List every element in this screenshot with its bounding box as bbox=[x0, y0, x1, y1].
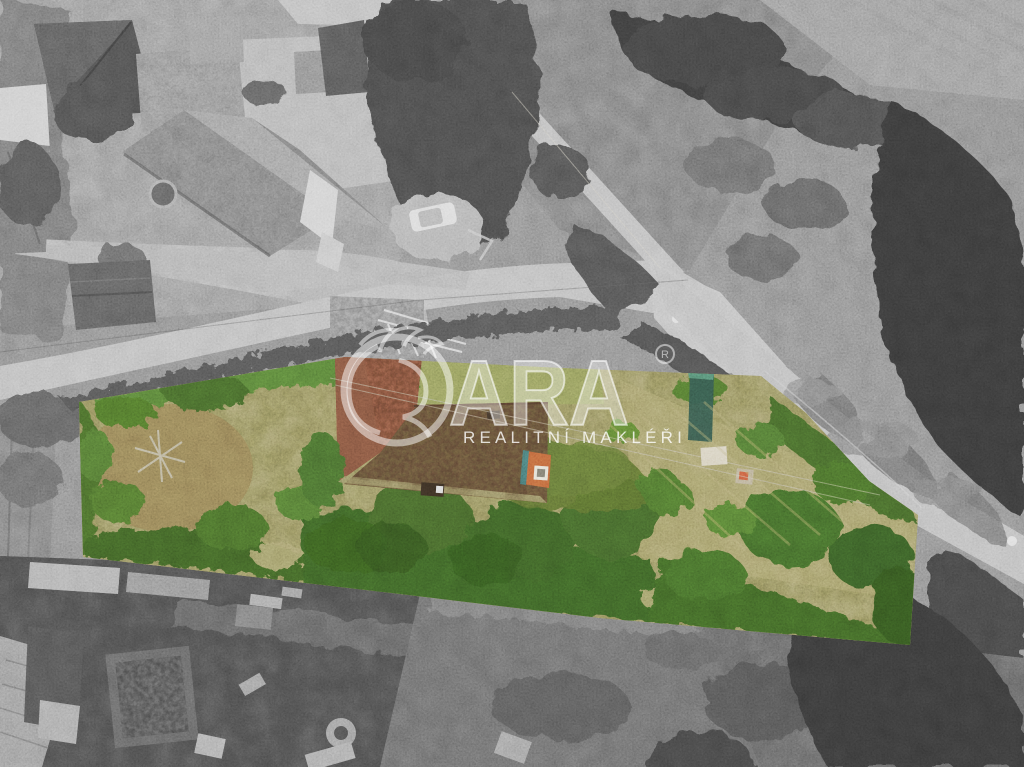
svg-text:R: R bbox=[661, 349, 669, 361]
svg-text:REALITNÍ MAKLÉŘI: REALITNÍ MAKLÉŘI bbox=[463, 428, 686, 447]
